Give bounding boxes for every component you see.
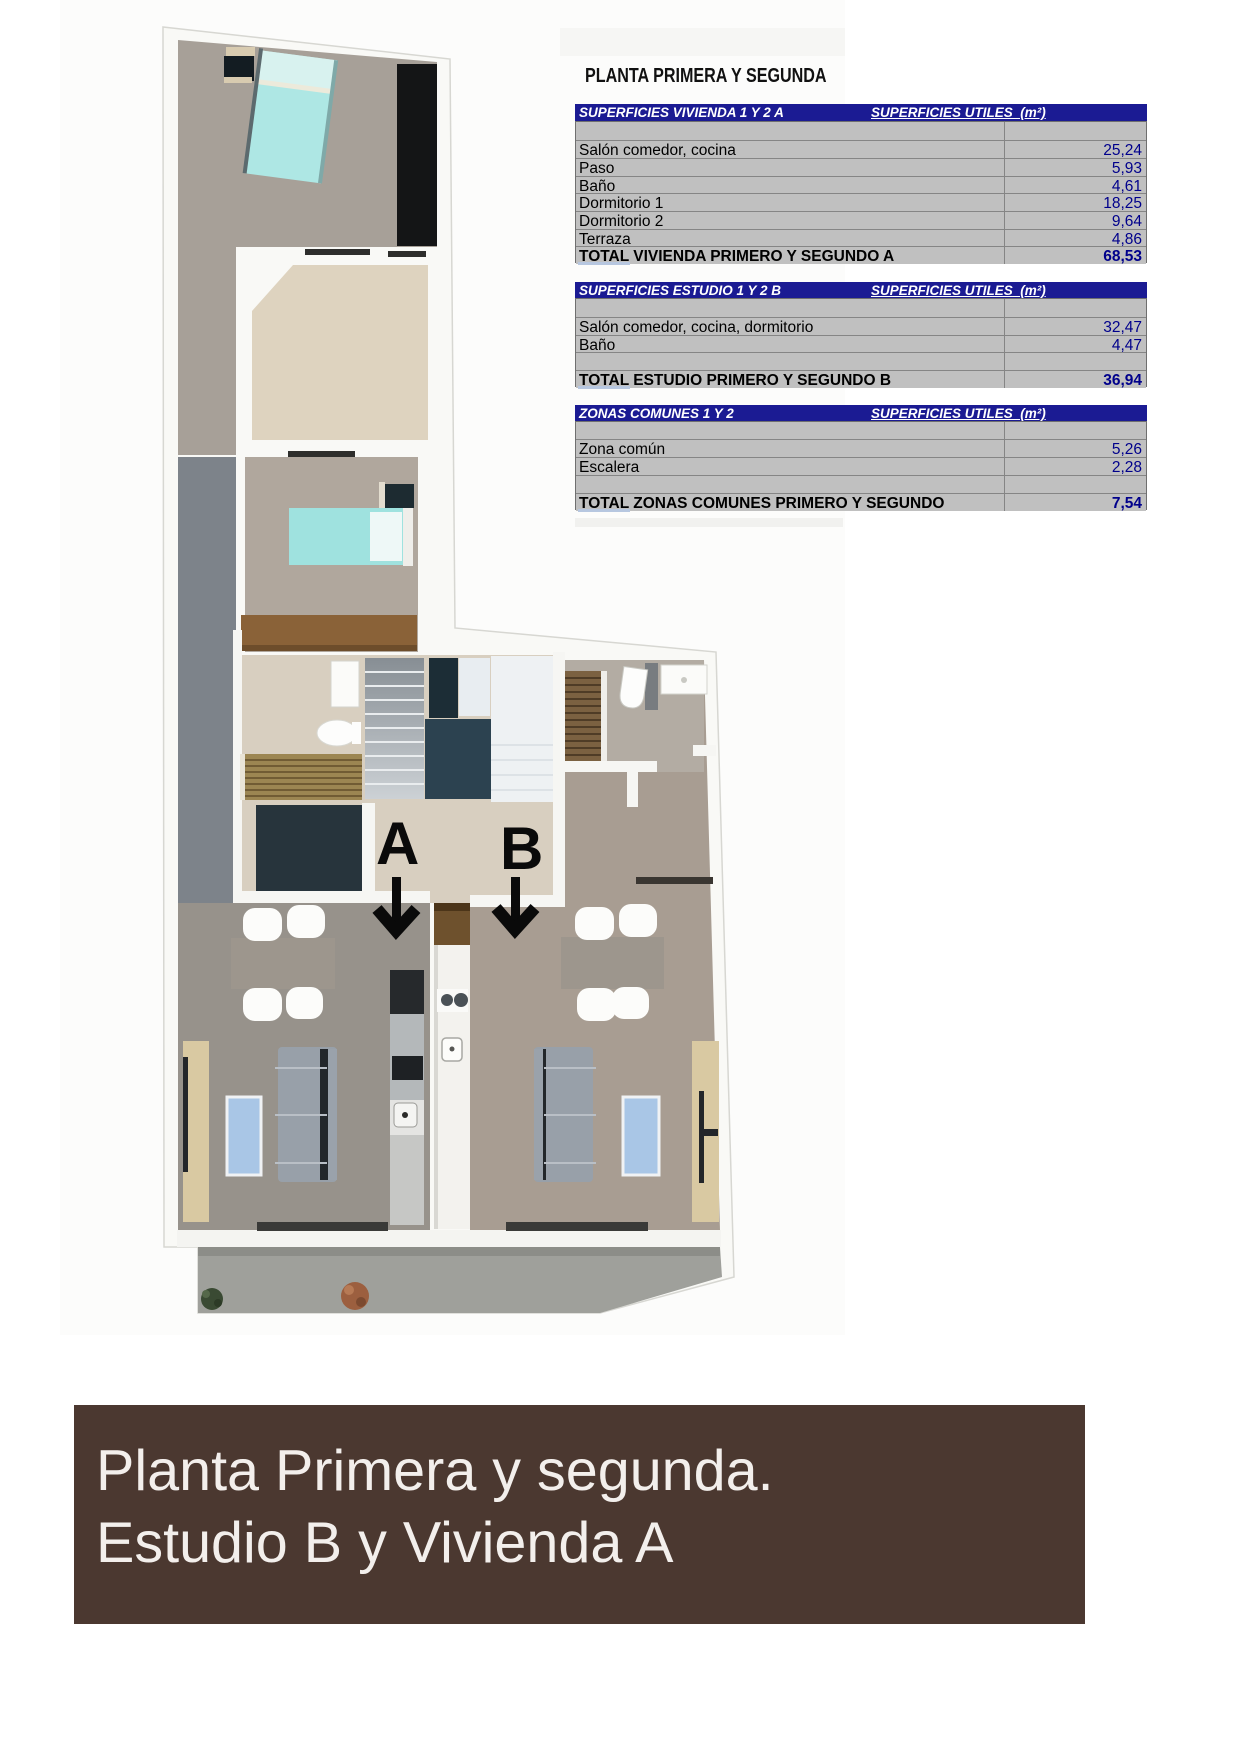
svg-text:B: B — [500, 815, 543, 882]
svg-text:A: A — [376, 810, 419, 877]
